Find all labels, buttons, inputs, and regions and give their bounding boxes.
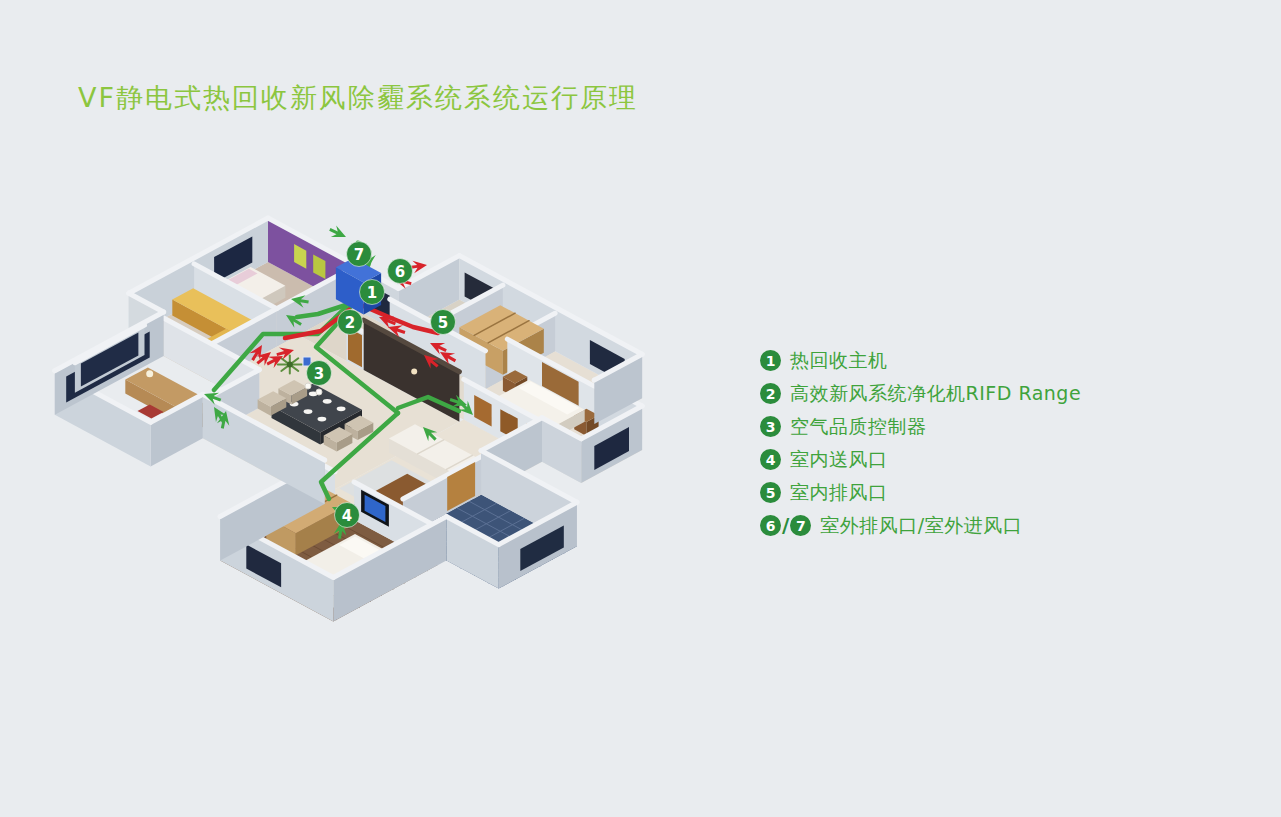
svg-text:2: 2 (345, 314, 355, 332)
legend: 1热回收主机2高效新风系统净化机RIFD Range3空气品质控制器4室内送风口… (760, 350, 1081, 548)
legend-item: 5室内排风口 (760, 482, 1081, 503)
legend-item-label: 室外排风口/室外进风口 (820, 513, 1022, 539)
legend-badge-3: 3 (760, 416, 781, 437)
marker-1: 1 (360, 280, 385, 305)
svg-text:7: 7 (354, 246, 364, 264)
svg-text:3: 3 (314, 365, 324, 383)
svg-text:1: 1 (367, 284, 377, 302)
legend-slash: / (782, 515, 789, 536)
legend-item-label: 室内送风口 (790, 447, 888, 473)
legend-badge-7: 7 (790, 515, 811, 536)
legend-item-label: 空气品质控制器 (790, 414, 927, 440)
legend-item: 3空气品质控制器 (760, 416, 1081, 437)
legend-item: 4室内送风口 (760, 449, 1081, 470)
legend-item-label: 室内排风口 (790, 480, 888, 506)
marker-2: 2 (338, 310, 363, 335)
legend-item-label: 高效新风系统净化机RIFD Range (790, 381, 1081, 407)
legend-badge-2: 2 (760, 383, 781, 404)
marker-5: 5 (431, 310, 456, 335)
marker-7: 7 (347, 242, 372, 267)
legend-badge-6: 6 (760, 515, 781, 536)
marker-4: 4 (335, 503, 360, 528)
legend-badge-4: 4 (760, 449, 781, 470)
floorplan-illustration: 1234567 (0, 0, 1281, 817)
legend-item: 2高效新风系统净化机RIFD Range (760, 383, 1081, 404)
legend-item: 6/7室外排风口/室外进风口 (760, 515, 1081, 536)
page: VF静电式热回收新风除霾系统系统运行原理 1234567 1热回收主机2高效新风… (0, 0, 1281, 817)
svg-text:6: 6 (395, 263, 405, 281)
legend-badge-5: 5 (760, 482, 781, 503)
legend-item-label: 热回收主机 (790, 348, 888, 374)
legend-item: 1热回收主机 (760, 350, 1081, 371)
legend-badge-1: 1 (760, 350, 781, 371)
marker-3: 3 (307, 361, 332, 386)
marker-6: 6 (388, 259, 413, 284)
svg-text:5: 5 (438, 314, 448, 332)
svg-text:4: 4 (342, 507, 352, 525)
